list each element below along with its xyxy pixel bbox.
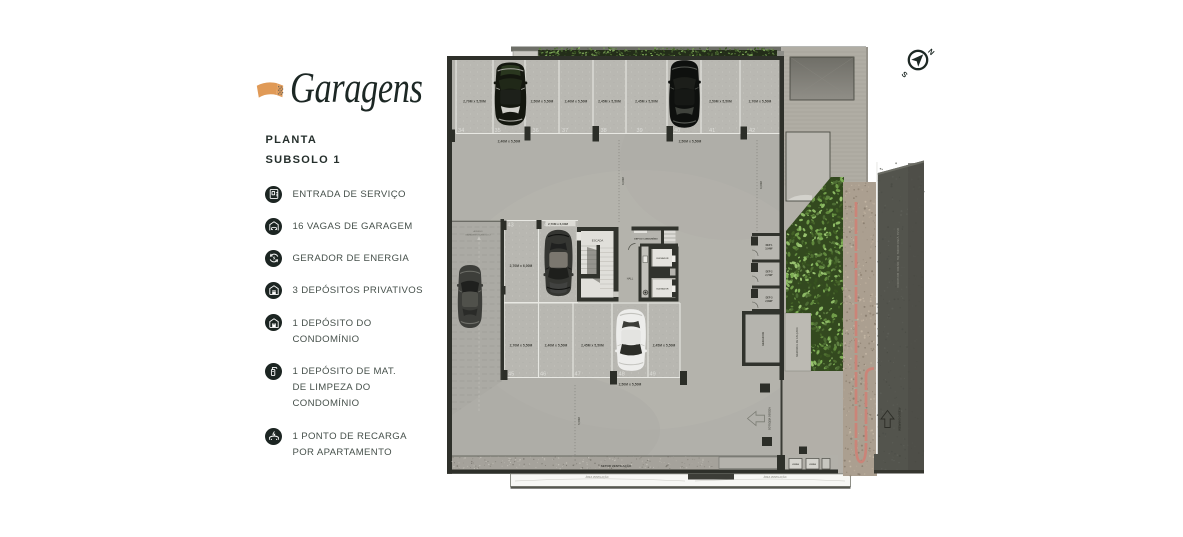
svg-text:47: 47: [575, 372, 581, 378]
svg-text:2,45M x 5,50M: 2,45M x 5,50M: [598, 100, 621, 104]
svg-text:2,70M x 6,00M: 2,70M x 6,00M: [548, 222, 569, 226]
svg-text:ESCADA: ESCADA: [592, 239, 604, 243]
svg-text:38: 38: [601, 128, 607, 134]
svg-text:SETOR VENTILAÇÃO: SETOR VENTILAÇÃO: [601, 463, 632, 468]
svg-text:36: 36: [533, 128, 539, 134]
svg-text:ÁREA VENTILAÇÃO: ÁREA VENTILAÇÃO: [764, 476, 787, 479]
svg-text:2,70M x 5,50M: 2,70M x 5,50M: [749, 100, 772, 104]
svg-text:41: 41: [709, 128, 715, 134]
svg-text:DEP 1: DEP 1: [766, 244, 774, 247]
svg-text:2,45M x 5,50M: 2,45M x 5,50M: [635, 100, 658, 104]
svg-text:5,50M: 5,50M: [577, 416, 581, 424]
svg-text:2,72M²: 2,72M²: [765, 273, 773, 277]
svg-text:RUA VISCONDE DE OURO BRANCO: RUA VISCONDE DE OURO BRANCO: [896, 228, 900, 288]
svg-text:2,40M x 5,50M: 2,40M x 5,50M: [498, 140, 521, 144]
svg-text:DEP 3: DEP 3: [766, 296, 774, 299]
svg-text:45: 45: [508, 372, 514, 378]
svg-text:35: 35: [495, 128, 501, 134]
svg-text:GERADOR: GERADOR: [761, 332, 765, 346]
svg-text:40: 40: [674, 128, 680, 134]
svg-text:2,40M x 5,50M: 2,40M x 5,50M: [545, 344, 568, 348]
svg-text:3,04M²: 3,04M²: [765, 247, 773, 251]
svg-text:LIXEIRA: LIXEIRA: [792, 463, 799, 466]
svg-text:2,70M x 5,50M: 2,70M x 5,50M: [463, 100, 486, 104]
svg-text:DEP 2: DEP 2: [766, 270, 774, 273]
svg-text:42: 42: [749, 128, 755, 134]
svg-text:2,89M²: 2,89M²: [765, 299, 773, 303]
svg-text:2,50M x 5,50M: 2,50M x 5,50M: [531, 100, 554, 104]
svg-text:6,00M: 6,00M: [621, 176, 625, 184]
svg-text:46: 46: [540, 372, 546, 378]
svg-text:2,45M x 5,50M: 2,45M x 5,50M: [653, 344, 676, 348]
svg-text:ACESSO GARAGEM: ACESSO GARAGEM: [898, 407, 901, 430]
svg-text:48: 48: [619, 372, 625, 378]
svg-text:ACESSO VEÍCULOS: ACESSO VEÍCULOS: [768, 407, 771, 430]
svg-text:2,70M x 6,00M: 2,70M x 6,00M: [510, 264, 533, 268]
svg-text:DEP DO CONDOMÍNIO: DEP DO CONDOMÍNIO: [634, 238, 658, 241]
svg-text:2,70M x 5,50M: 2,70M x 5,50M: [510, 344, 533, 348]
svg-text:49: 49: [650, 372, 656, 378]
svg-text:2,50M x 5,50M: 2,50M x 5,50M: [709, 100, 732, 104]
svg-text:2,50M x 5,50M: 2,50M x 5,50M: [619, 383, 642, 387]
svg-text:ELEVADOR: ELEVADOR: [657, 257, 669, 260]
svg-text:N: N: [926, 47, 936, 57]
svg-text:6,00M: 6,00M: [759, 180, 763, 188]
svg-text:LIXEIRA: LIXEIRA: [809, 463, 816, 466]
svg-text:GARAGENS SUBSOLO 2: GARAGENS SUBSOLO 2: [465, 234, 491, 237]
svg-text:43: 43: [508, 223, 514, 229]
svg-text:2,40M x 5,50M: 2,40M x 5,50M: [565, 100, 588, 104]
svg-text:ELEVADOR: ELEVADOR: [657, 287, 669, 290]
svg-text:MEMORIAL DE CALÇADA: MEMORIAL DE CALÇADA: [796, 327, 799, 357]
svg-text:2,50M x 5,50M: 2,50M x 5,50M: [679, 140, 702, 144]
svg-text:2,45M x 5,50M: 2,45M x 5,50M: [581, 344, 604, 348]
svg-text:39: 39: [637, 128, 643, 134]
svg-text:S: S: [900, 70, 910, 80]
svg-text:34: 34: [458, 128, 464, 134]
svg-text:HALL: HALL: [627, 277, 634, 281]
svg-text:37: 37: [562, 128, 568, 134]
svg-text:ÁREA VENTILAÇÃO: ÁREA VENTILAÇÃO: [586, 476, 609, 479]
svg-text:ACESSO: ACESSO: [473, 230, 482, 233]
